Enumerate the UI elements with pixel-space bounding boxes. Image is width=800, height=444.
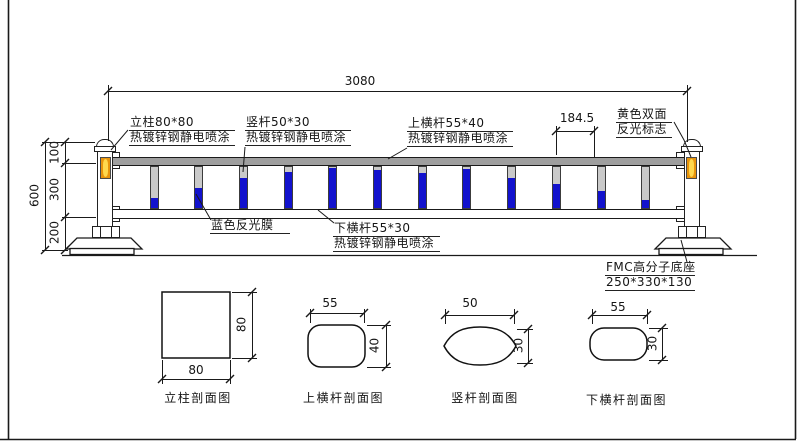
post-annotation: 立柱80*80 热镀锌钢静电喷涂: [129, 116, 235, 146]
blue-film-segment: [508, 178, 515, 208]
section-post-height-dim: 80: [236, 310, 249, 340]
blue-film-segment: [374, 170, 381, 208]
right-yellow-reflector: [686, 157, 697, 179]
dim-seg-100: 100: [49, 138, 62, 168]
blue-film-segment: [151, 198, 158, 208]
fence-bar: [284, 166, 293, 209]
right-post-cap-band: [681, 146, 703, 152]
bottom-rail-section-shape: [590, 328, 647, 360]
section-top-rail-width-dim: 55: [316, 297, 344, 310]
base-annotation-line1: FMC高分子底座: [605, 261, 695, 276]
bottom-rail-annotation-line1: 下横杆55*30: [333, 222, 440, 237]
bottom-rail-annotation: 下横杆55*30 热镀锌钢静电喷涂: [333, 222, 440, 252]
reflector-annotation-line1: 黄色双面: [616, 108, 672, 123]
blue-film-annotation: 蓝色反光膜: [210, 219, 290, 234]
dim-seg-300: 300: [49, 175, 62, 205]
blue-film-annotation-line1: 蓝色反光膜: [210, 219, 290, 234]
blue-film-segment: [553, 184, 560, 208]
top-rail-annotation-line2: 热镀锌钢静电喷涂: [407, 132, 513, 147]
dim-seg-200: 200: [49, 218, 62, 248]
fence-bar: [194, 166, 203, 209]
post-annotation-line2: 热镀锌钢静电喷涂: [129, 131, 235, 146]
post-section-shape: [162, 292, 230, 358]
drawing-canvas: 3080 184.5 100 300 200 600 立柱80*80 热镀锌钢静…: [0, 0, 800, 444]
vertical-bar-annotation-line2: 热镀锌钢静电喷涂: [245, 131, 351, 146]
base-annotation: FMC高分子底座 250*330*130: [605, 261, 695, 291]
vertical-bar-annotation-line1: 竖杆50*30: [245, 116, 351, 131]
blue-film-segment: [598, 191, 605, 208]
blue-film-segment: [195, 188, 202, 208]
section-bottom-rail-width-dim: 55: [604, 301, 632, 314]
left-post-collar: [92, 226, 120, 238]
fence-bar: [150, 166, 159, 209]
blue-film-segment: [285, 172, 292, 208]
left-post-cap-band: [94, 146, 116, 152]
dim-total-width: 3080: [334, 75, 386, 88]
fence-bar: [597, 166, 606, 209]
reflector-annotation: 黄色双面 反光标志: [616, 108, 672, 138]
left-yellow-reflector: [100, 157, 111, 179]
top-rail-annotation: 上横杆55*40 热镀锌钢静电喷涂: [407, 117, 513, 147]
right-base-plate: [659, 249, 723, 255]
left-base-plate: [70, 249, 134, 255]
fence-bar: [328, 166, 337, 209]
dim-bar-spacing: 184.5: [553, 112, 601, 125]
section-bottom-rail-label: 下横杆剖面图: [586, 391, 666, 408]
section-bottom-rail-height-dim: 30: [647, 329, 660, 359]
lower-rail: [112, 209, 686, 219]
fence-bar: [239, 166, 248, 209]
bottom-rail-annotation-line2: 热镀锌钢静电喷涂: [333, 237, 440, 252]
upper-rail: [112, 157, 686, 166]
right-base-trapezoid: [655, 238, 731, 249]
reflector-annotation-line2: 反光标志: [616, 123, 672, 138]
section-vertical-bar-width-dim: 50: [456, 297, 484, 310]
section-vertical-bar-height-dim: 30: [513, 331, 526, 361]
fence-bar: [418, 166, 427, 209]
section-post-width-dim: 80: [182, 364, 210, 377]
section-vertical-bar-label: 竖杆剖面图: [447, 389, 523, 406]
blue-film-segment: [642, 200, 649, 208]
blue-film-segment: [419, 173, 426, 208]
section-post-label: 立柱剖面图: [160, 389, 236, 406]
dim-overall-height: 600: [29, 181, 42, 211]
vertical-bar-annotation: 竖杆50*30 热镀锌钢静电喷涂: [245, 116, 351, 146]
fence-bar: [641, 166, 650, 209]
right-post-collar: [678, 226, 706, 238]
blue-film-segment: [463, 169, 470, 208]
blue-film-segment: [240, 178, 247, 208]
fence-bar: [507, 166, 516, 209]
blue-film-segment: [329, 168, 336, 208]
base-annotation-line2: 250*330*130: [605, 276, 695, 291]
fence-bar: [552, 166, 561, 209]
top-rail-section-shape: [308, 325, 365, 367]
section-top-rail-label: 上横杆剖面图: [303, 389, 383, 406]
vertical-bar-section-shape: [444, 327, 516, 365]
section-top-rail-height-dim: 40: [369, 331, 382, 361]
fence-bar: [373, 166, 382, 209]
top-rail-annotation-line1: 上横杆55*40: [407, 117, 513, 132]
fence-bar: [462, 166, 471, 209]
post-annotation-line1: 立柱80*80: [129, 116, 235, 131]
left-base-trapezoid: [66, 238, 142, 249]
